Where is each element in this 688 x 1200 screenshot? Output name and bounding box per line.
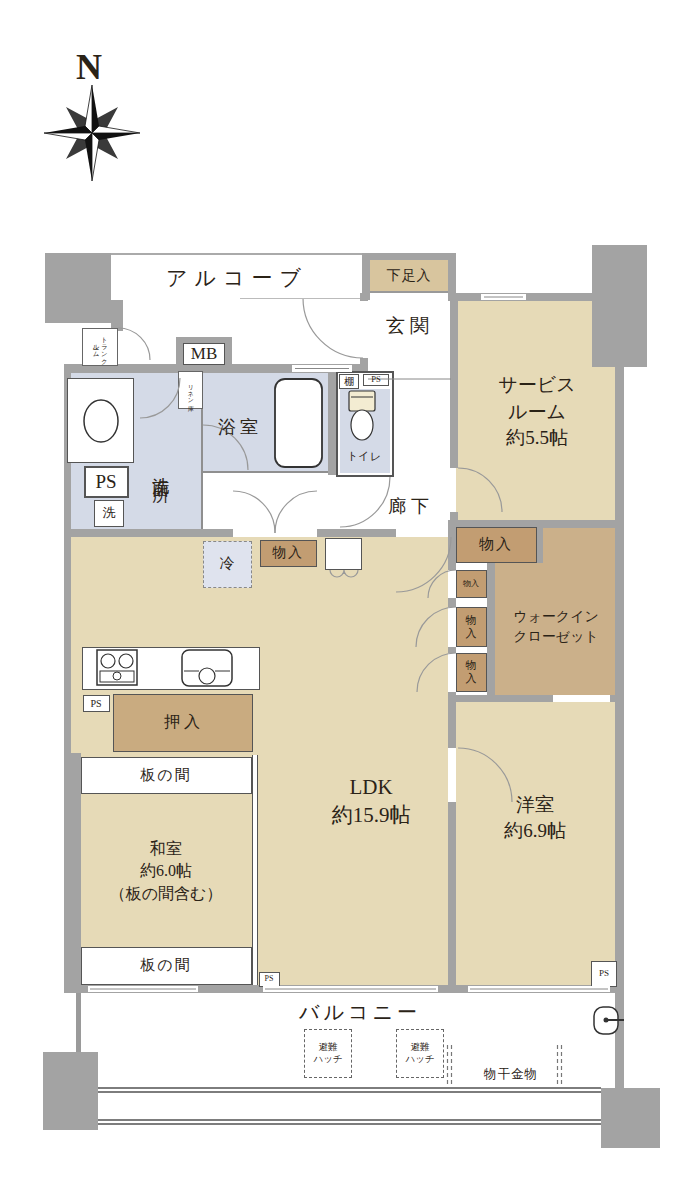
meter-box-label: MB <box>191 343 217 365</box>
wall-corridor-b <box>317 529 396 537</box>
balcony-rail-1 <box>98 1087 601 1089</box>
vanity-box <box>67 378 134 463</box>
linen-cabinet-label: リネン庫 <box>186 380 194 401</box>
storage-label-big: 物入 <box>479 535 513 555</box>
bathroom-label: 浴室 <box>218 416 262 439</box>
wall-service-left-a <box>450 293 458 468</box>
entrance-label: 玄関 <box>386 314 434 339</box>
western-room-label: 洋室 約6.9帖 <box>504 792 566 843</box>
balcony-label: バルコニー <box>299 999 421 1025</box>
wood-floor-label-bottom: 板の間 <box>140 956 191 976</box>
alcove-top-line <box>111 253 364 255</box>
wall-mid-1 <box>448 528 456 570</box>
pipe-space-label-japanese: PS <box>265 974 274 984</box>
compass-rose-icon <box>44 85 140 181</box>
washroom-label: 洗面所 <box>149 464 171 476</box>
wall-wic-left <box>487 563 495 695</box>
pillar-bottom-right <box>601 1088 660 1148</box>
wall-entrance-left-b <box>360 358 368 372</box>
refrigerator-label: 冷 <box>220 554 235 574</box>
double-door-right-arc <box>275 491 317 533</box>
closet-label: 押入 <box>164 712 204 733</box>
wall-left-japanese <box>71 753 81 985</box>
front-door-arc <box>303 298 363 358</box>
toilet-door-arc <box>340 477 390 527</box>
kitchen-counter <box>82 647 260 690</box>
japanese-room-label: 和室 約6.0帖 （板の間含む） <box>110 838 223 905</box>
window-western-room <box>468 986 610 992</box>
pipe-space-label-kitchen: PS <box>90 697 101 710</box>
window-service-top <box>481 294 526 300</box>
storage-label-mid: 物入 <box>272 544 304 562</box>
pillar-bottom-left <box>43 1052 98 1130</box>
wall-corridor-a <box>64 529 233 537</box>
window-japanese-room <box>88 986 198 992</box>
wall-shoe-top <box>362 253 456 260</box>
balcony-rail-4 <box>98 1123 601 1125</box>
wall-mid-2 <box>448 598 456 607</box>
wall-wic-bottom-a <box>448 695 553 702</box>
shoe-storage-label: 下足入 <box>387 267 432 285</box>
wall-wic-sep <box>537 527 543 563</box>
shelf-label: 棚 <box>344 375 354 388</box>
wood-floor-label-top: 板の間 <box>140 766 191 786</box>
wall-entrance-left-a <box>360 293 368 301</box>
double-door-left-arc <box>233 491 275 533</box>
balcony-rail-2 <box>98 1091 601 1093</box>
laundry-pole-label: 物干金物 <box>484 1066 538 1082</box>
wall-mid-5 <box>448 802 456 985</box>
wall-mid-3 <box>448 647 456 653</box>
storage-label-s2: 物 入 <box>466 614 477 639</box>
wall-bath-bottom <box>203 471 330 473</box>
pipe-space-label-western: PS <box>599 968 609 980</box>
trunk-door-arc <box>118 328 150 360</box>
sliding-door-japanese-room <box>252 755 258 985</box>
floor-plan: N アルコーブ 下足入 玄関 サービス ルーム 約5.5帖 トランク ルーム M… <box>0 0 688 1200</box>
trunk-room-label: トランク ルーム <box>92 332 109 362</box>
escape-hatch-label-2: 避難 ハッチ <box>405 1041 434 1066</box>
walk-in-closet-label: ウォークイン クローゼット <box>513 607 599 646</box>
service-room-floor-upper <box>458 301 592 367</box>
wall-bath-right <box>328 373 336 475</box>
wall-wic-bottom-b <box>610 695 624 702</box>
compass-north-label: N <box>76 44 102 91</box>
toilet-label: トイレ <box>347 449 381 463</box>
ldk-cabinet-box <box>325 538 362 570</box>
balcony-rail-3 <box>98 1119 601 1121</box>
storage-label-s3: 物 入 <box>466 659 477 684</box>
pillar-top-left-step <box>111 300 123 331</box>
window-porch <box>292 365 352 372</box>
escape-hatch-label-1: 避難 ハッチ <box>313 1041 342 1066</box>
laundry-label: 洗 <box>103 505 116 522</box>
pipe-space-label-washroom: PS <box>95 470 116 495</box>
window-ldk <box>263 986 438 992</box>
alcove-label: アルコーブ <box>166 265 308 292</box>
service-room-label: サービス ルーム 約5.5帖 <box>498 372 575 452</box>
ldk-label: LDK 約15.9帖 <box>332 773 411 830</box>
wall-balcony-left <box>76 993 81 1052</box>
pipe-space-label-toilet: PS <box>371 374 380 385</box>
shoe-bottom-line <box>370 291 448 293</box>
storage-label-s1: 物入 <box>463 579 479 589</box>
pillar-top-left <box>45 253 111 323</box>
pillar-top-right <box>592 245 647 367</box>
corridor-label: 廊下 <box>388 495 434 518</box>
